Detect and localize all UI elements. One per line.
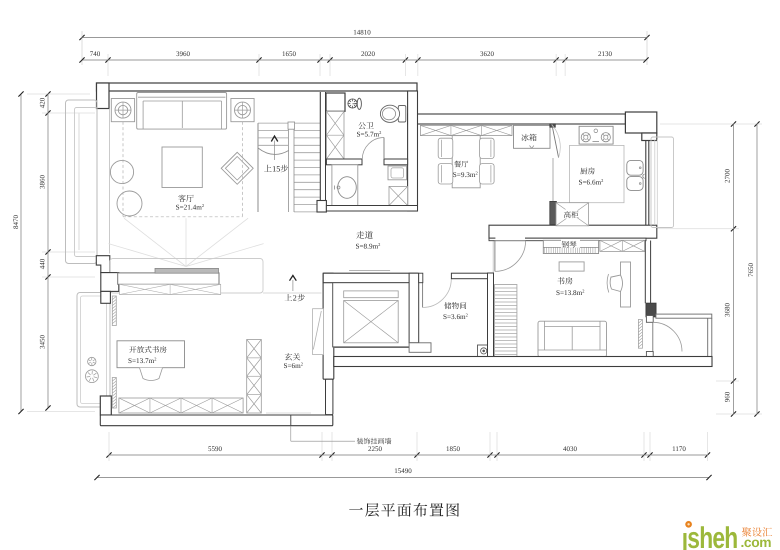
svg-text:5590: 5590: [208, 445, 223, 453]
svg-text:1170: 1170: [672, 445, 686, 453]
svg-text:440: 440: [39, 258, 47, 269]
svg-text:8470: 8470: [12, 215, 20, 230]
svg-text:14810: 14810: [353, 29, 371, 37]
svg-text:S=9.3m2: S=9.3m2: [453, 170, 478, 179]
svg-text:2: 2: [293, 294, 297, 303]
svg-text:1850: 1850: [446, 445, 461, 453]
svg-text:420: 420: [39, 97, 47, 108]
svg-text:15490: 15490: [394, 467, 412, 475]
svg-text:3620: 3620: [480, 50, 495, 58]
svg-text:S=21.4m2: S=21.4m2: [176, 203, 204, 212]
svg-text:S=13.8m2: S=13.8m2: [556, 289, 584, 298]
svg-text:2130: 2130: [598, 50, 613, 58]
svg-text:960: 960: [724, 391, 732, 402]
svg-text:3860: 3860: [39, 175, 47, 190]
svg-text:S=13.7m2: S=13.7m2: [128, 357, 156, 366]
svg-text:1650: 1650: [282, 50, 297, 58]
svg-text:3680: 3680: [724, 303, 732, 318]
svg-text:2250: 2250: [368, 445, 383, 453]
svg-text:S=3.6m2: S=3.6m2: [443, 313, 468, 322]
svg-text:S=6.6m2: S=6.6m2: [579, 178, 604, 187]
svg-text:S=5.7m2: S=5.7m2: [357, 130, 382, 139]
svg-text:7650: 7650: [747, 263, 755, 278]
svg-text:740: 740: [90, 50, 101, 58]
svg-text:2020: 2020: [361, 50, 376, 58]
svg-text:2700: 2700: [724, 169, 732, 184]
svg-text:S=8.9m2: S=8.9m2: [356, 242, 381, 251]
svg-text:3450: 3450: [39, 335, 47, 350]
svg-text:3960: 3960: [176, 50, 191, 58]
svg-text:15: 15: [272, 165, 280, 174]
svg-text:4030: 4030: [563, 445, 578, 453]
svg-text:S=6m2: S=6m2: [284, 362, 303, 371]
svg-text:.com: .com: [741, 535, 772, 550]
